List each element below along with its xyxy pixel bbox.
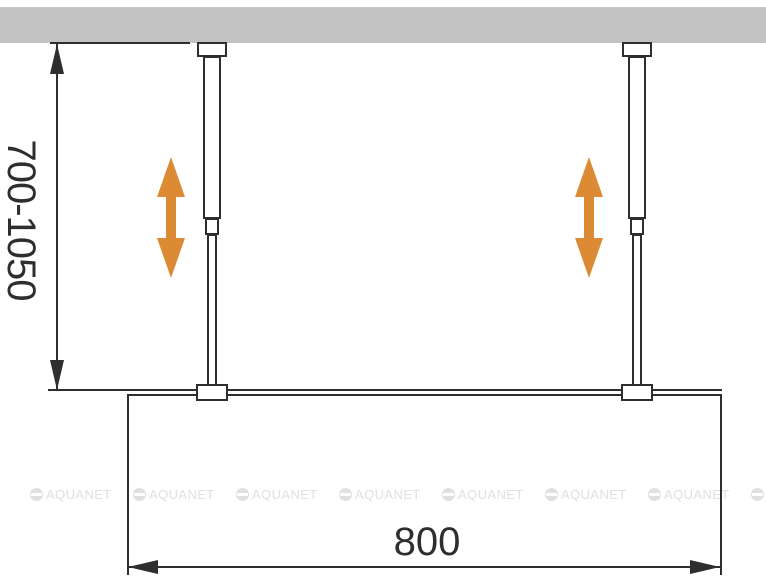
ceiling-mount-bracket: [197, 42, 227, 57]
adjustment-collar: [630, 218, 644, 235]
arrowhead-up-icon: [50, 44, 64, 74]
watermark: AQUANET: [30, 487, 112, 502]
arrowhead-left-icon: [128, 560, 158, 574]
arrowhead-right-icon: [690, 560, 720, 574]
adjustment-collar: [205, 218, 219, 235]
ceiling-slab: [0, 7, 766, 43]
lower-tube: [207, 234, 217, 386]
upper-tube: [203, 56, 221, 219]
height-adjust-arrow-icon: [157, 157, 185, 278]
watermark-text: AQUANET: [46, 487, 112, 502]
watermark: AQUANET: [751, 487, 766, 502]
lower-tube: [632, 234, 642, 386]
upper-tube: [628, 56, 646, 219]
watermark-logo-icon: [751, 488, 764, 501]
width-dimension-line: [128, 566, 720, 568]
glass-clamp: [621, 384, 653, 401]
ceiling-extension-line: [50, 42, 190, 44]
height-adjust-arrow-icon: [575, 157, 603, 278]
height-dimension-line: [56, 44, 58, 390]
height-dimension-label: 700-1050: [0, 120, 43, 320]
arrowhead-down-icon: [50, 360, 64, 390]
watermark-logo-icon: [30, 488, 43, 501]
ceiling-mount-bracket: [622, 42, 652, 57]
width-dimension-label: 800: [377, 520, 477, 565]
glass-clamp: [196, 384, 228, 401]
technical-diagram: 700-1050 AQUANET AQUANET AQUANET: [0, 0, 766, 584]
